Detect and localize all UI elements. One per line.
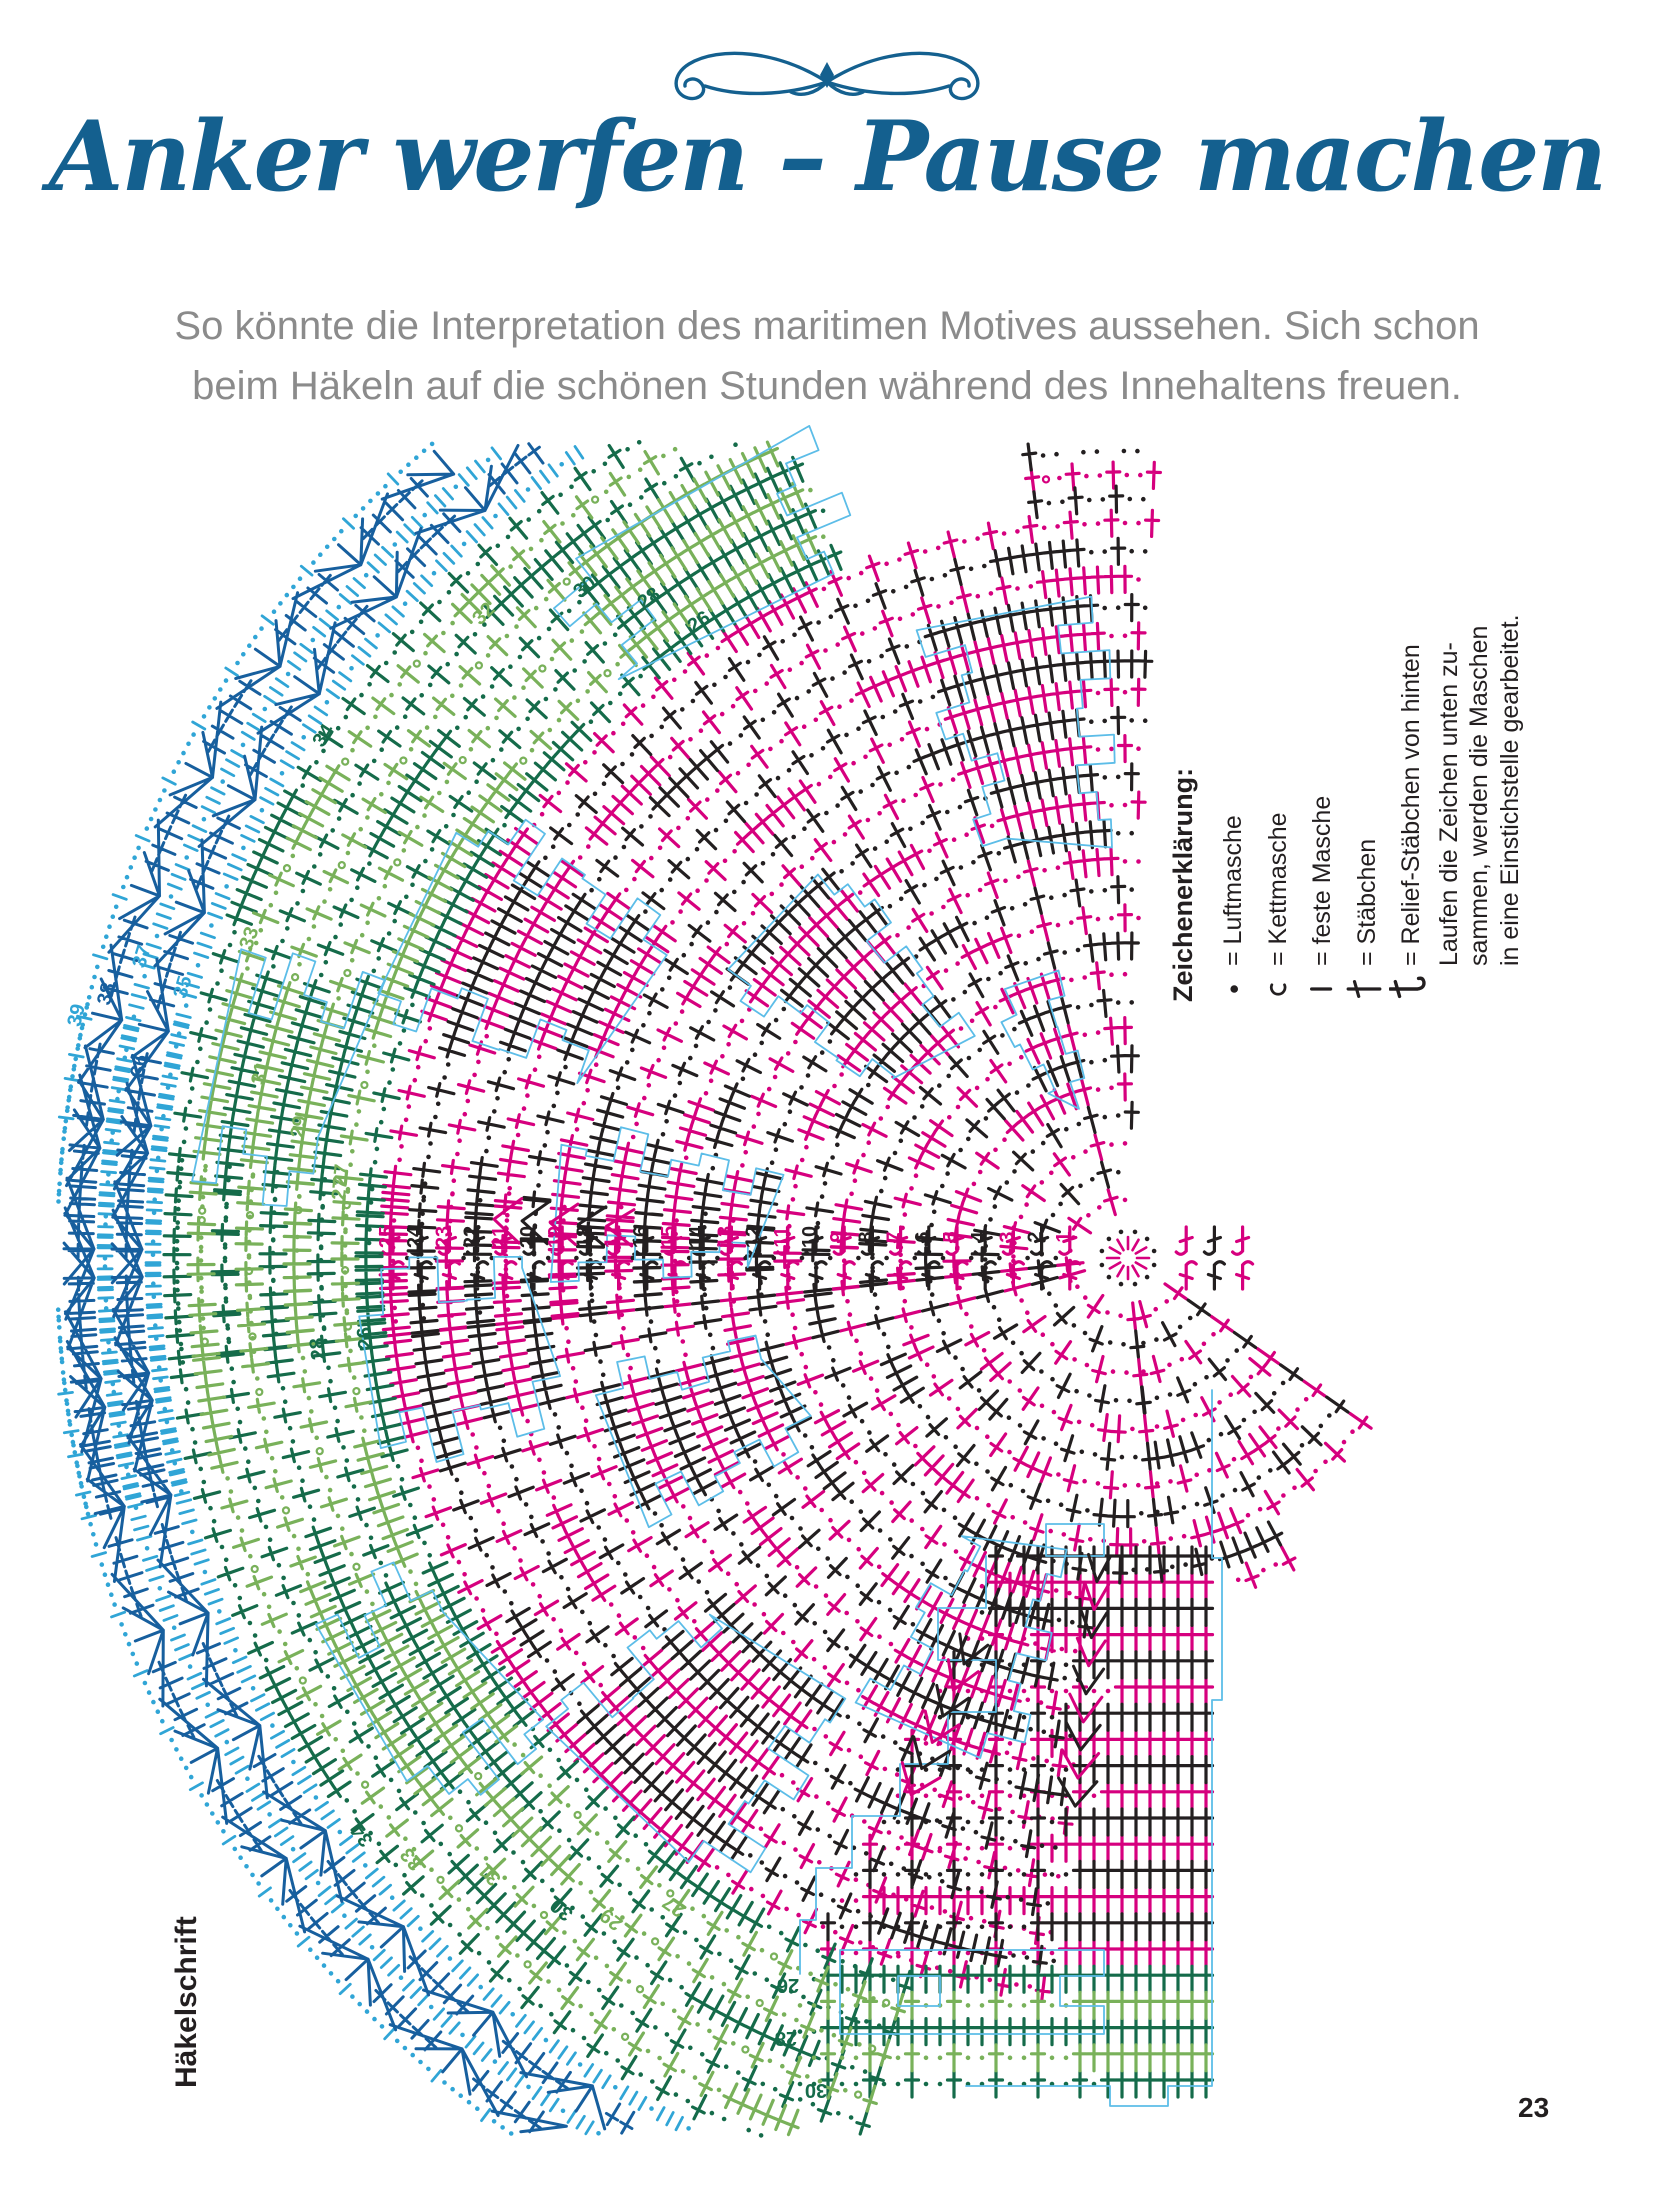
row-number: 7 [884,1231,906,1242]
single-crochet-icon [1300,976,1338,1002]
row-number: 8 [855,1231,877,1242]
row-number: 3 [996,1231,1018,1242]
row-number: 32 [468,598,499,629]
row-number: 31 [247,1060,273,1086]
row-number: 34 [346,1819,377,1851]
slip-stitch-icon [1256,976,1294,1002]
row-number: 22 [461,1226,483,1248]
row-number: 30 [805,2079,827,2101]
row-number: 5 [940,1231,962,1242]
row-number: 30 [546,1894,577,1925]
row-number: 29 [596,1904,627,1935]
legend: Zeichenerklärung: = Luftmasche = Kettmas… [1168,588,1512,1002]
legend-item-label: = feste Masche [1300,796,1339,966]
row-number: 27 [329,1163,353,1187]
row-number: 28 [775,2027,797,2049]
relief-double-crochet-icon [1389,976,1427,1002]
legend-item-label: = Kettmasche [1256,812,1295,966]
row-number: 13 [714,1226,736,1248]
row-number: 6 [912,1231,934,1242]
row-number: 9 [827,1231,849,1242]
page-number: 23 [1518,2092,1549,2124]
crochet-chart-svg: 1234567891011121314151617181920212223242… [0,0,1654,2205]
row-number: 23 [432,1226,454,1248]
row-number: 21 [489,1226,511,1248]
chain-stitch-icon [1211,976,1249,1002]
row-number: 28 [634,583,665,614]
legend-item-label: = Relief-Stäbchen von hinten [1389,644,1428,966]
legend-note-line: in eine Einstichstelle gearbeitet. [1495,588,1526,966]
row-number: 16 [630,1226,652,1248]
row-number: 18 [573,1226,595,1248]
row-number: 26 [353,1326,377,1350]
row-number: 20 [517,1226,539,1248]
row-number: 14 [686,1225,708,1248]
legend-item: = Stäbchen [1345,588,1384,1002]
legend-item: = feste Masche [1300,588,1339,1002]
chart-type-label: Häkelschrift [170,1916,204,2088]
row-number: 1 [1053,1231,1075,1242]
row-number: 29 [287,1114,312,1139]
row-number: 12 [743,1226,765,1248]
row-number: 33 [396,1843,427,1874]
row-number: 17 [602,1226,624,1248]
row-number: 4 [968,1231,990,1243]
double-crochet-icon [1345,976,1383,1002]
row-number: 11 [771,1226,793,1247]
row-number: 25 [376,1226,398,1248]
row-number: 10 [799,1226,821,1248]
row-number: 24 [404,1225,426,1248]
row-number: 28 [306,1337,330,1362]
legend-item-label: = Stäbchen [1345,839,1384,966]
legend-item: = Relief-Stäbchen von hinten [1389,588,1428,1002]
row-number: 26 [777,1974,799,1996]
legend-item: = Kettmasche [1256,588,1295,1002]
row-number: 15 [658,1226,680,1248]
legend-note-line: sammen, werden die Maschen [1464,588,1495,966]
row-number: 36 [127,1053,153,1079]
legend-item-label: = Luftmasche [1211,815,1250,966]
legend-note-line: Laufen die Zeichen unten zu- [1434,588,1465,966]
row-number: 33 [235,924,263,952]
row-number: 2 [1025,1231,1047,1242]
row-number: 19 [545,1226,567,1248]
legend-item: = Luftmasche [1211,588,1250,1002]
legend-heading: Zeichenerklärung: [1168,588,1199,1002]
row-number: 34 [308,720,339,751]
